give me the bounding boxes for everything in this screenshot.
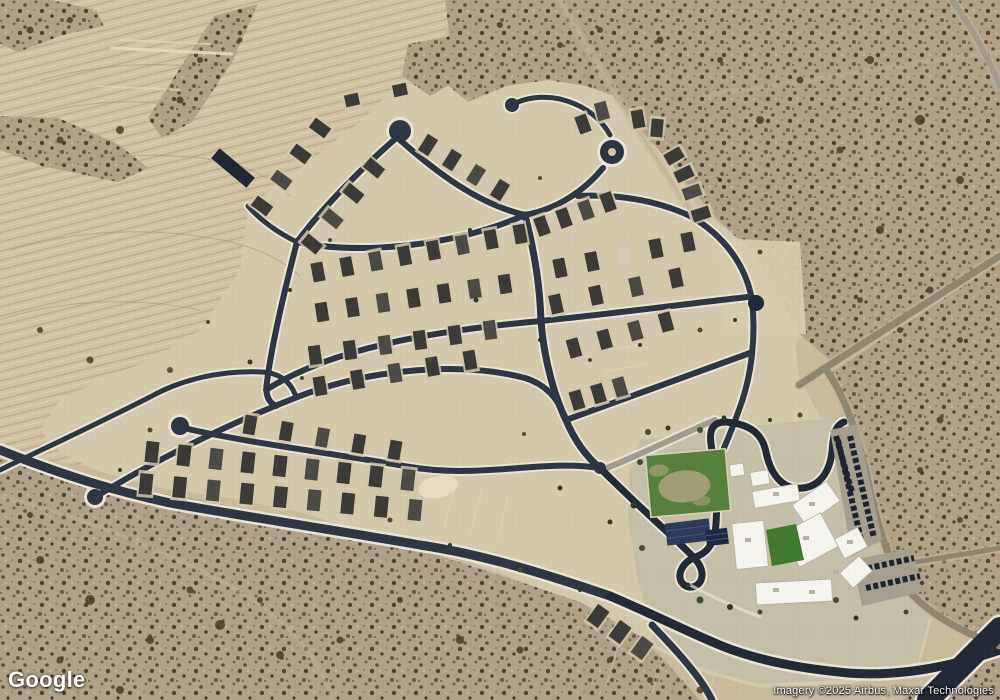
google-logo[interactable]: Google	[8, 667, 86, 693]
satellite-imagery[interactable]	[0, 0, 1000, 700]
imagery-attribution: Imagery ©2025 Airbus, Maxar Technologies	[773, 685, 994, 697]
grain-overlay	[0, 0, 1000, 700]
overlay-layer	[0, 0, 1000, 700]
map-viewport[interactable]: Google Imagery ©2025 Airbus, Maxar Techn…	[0, 0, 1000, 700]
